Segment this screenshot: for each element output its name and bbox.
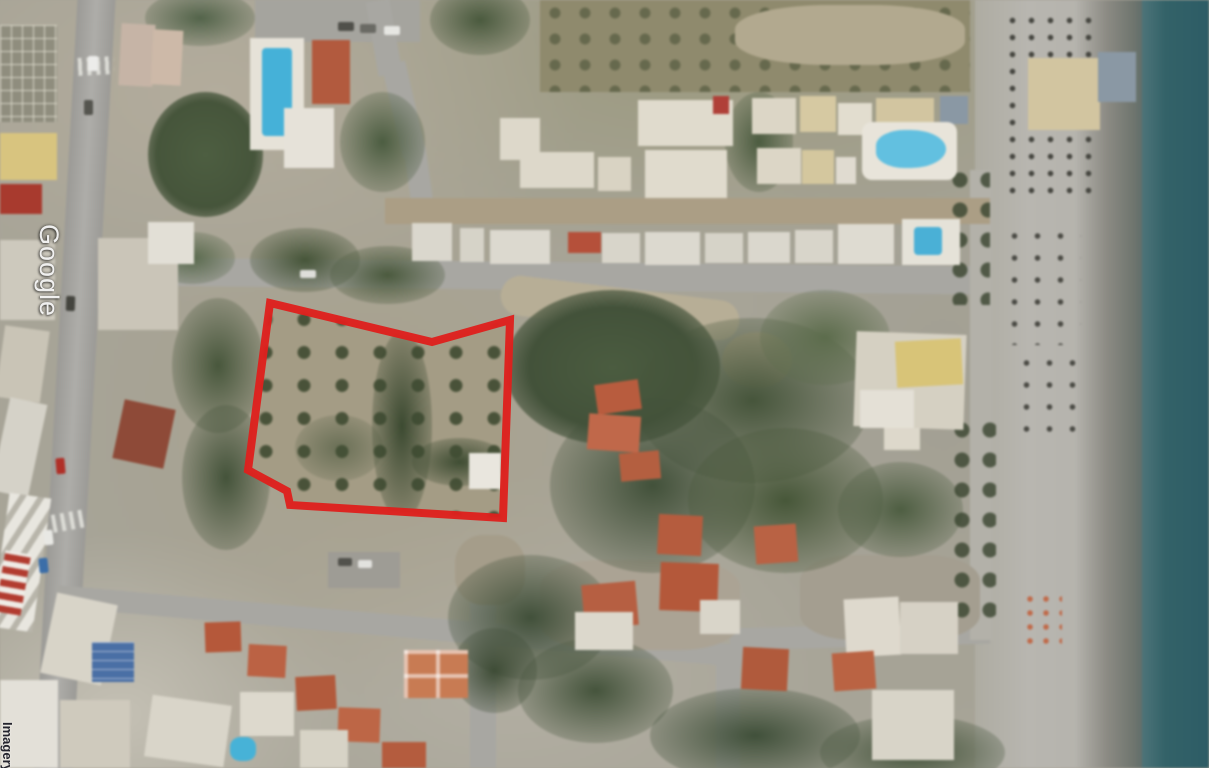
swimming-pool bbox=[230, 737, 256, 761]
building-block bbox=[645, 232, 700, 265]
building-block bbox=[1098, 52, 1136, 102]
building-block bbox=[151, 29, 184, 85]
building-block bbox=[60, 700, 130, 768]
building-block bbox=[700, 600, 740, 634]
building-block bbox=[757, 148, 801, 184]
dirt-patch bbox=[735, 5, 965, 65]
building-block bbox=[836, 157, 856, 184]
building-block bbox=[0, 133, 57, 180]
building-roof bbox=[204, 621, 241, 652]
building-block bbox=[0, 397, 47, 498]
building-roof bbox=[295, 675, 337, 711]
building-block bbox=[520, 152, 594, 188]
sea bbox=[1142, 0, 1209, 768]
swimming-pool bbox=[876, 130, 946, 168]
tree-clump bbox=[295, 415, 383, 481]
building-roof bbox=[619, 450, 661, 481]
car bbox=[384, 26, 400, 35]
building-block bbox=[940, 96, 968, 124]
tree-canopy bbox=[430, 0, 530, 55]
building-block bbox=[490, 230, 550, 264]
building-awning bbox=[0, 184, 42, 214]
tree-mass bbox=[518, 638, 673, 743]
satellite-map: Google Imagery bbox=[0, 0, 1209, 768]
building-block bbox=[884, 428, 920, 450]
beach-umbrellas bbox=[1003, 225, 1081, 345]
car bbox=[300, 270, 316, 278]
car bbox=[338, 558, 352, 566]
building-roof bbox=[112, 399, 175, 469]
building-roof bbox=[382, 742, 426, 768]
car bbox=[55, 458, 65, 475]
beach-bushes bbox=[948, 415, 996, 627]
building-block bbox=[312, 40, 350, 104]
car bbox=[358, 560, 372, 568]
building-block bbox=[838, 224, 894, 264]
building-roof bbox=[568, 232, 601, 253]
building-canopy bbox=[802, 150, 834, 184]
building-block bbox=[860, 390, 914, 428]
car bbox=[43, 530, 54, 546]
building-block bbox=[575, 612, 633, 650]
building-canopy bbox=[800, 96, 836, 132]
car bbox=[84, 100, 93, 115]
building-block bbox=[144, 695, 232, 768]
dirt-strip bbox=[385, 198, 990, 224]
google-watermark: Google bbox=[33, 224, 64, 317]
building-roof bbox=[713, 96, 729, 114]
building-block bbox=[460, 228, 484, 262]
building-block bbox=[284, 108, 334, 168]
tree-canopy bbox=[340, 92, 425, 192]
building-block bbox=[748, 232, 790, 263]
courtyard bbox=[404, 650, 468, 698]
building-roof bbox=[754, 524, 799, 565]
building-block bbox=[412, 223, 452, 261]
building-roof bbox=[741, 647, 789, 691]
olive-grove-plot bbox=[247, 303, 510, 518]
building-block bbox=[705, 233, 743, 263]
car bbox=[338, 22, 354, 31]
building-block bbox=[795, 230, 833, 263]
tree-mass bbox=[838, 462, 963, 557]
building-block bbox=[872, 690, 954, 760]
car bbox=[38, 558, 49, 574]
solar-panels bbox=[92, 642, 134, 682]
building-roof bbox=[657, 514, 703, 556]
building-roof bbox=[895, 338, 963, 387]
building-block bbox=[148, 222, 194, 264]
building-block bbox=[844, 597, 902, 658]
swimming-pool bbox=[914, 227, 942, 255]
building-roof bbox=[832, 651, 877, 692]
beach-umbrellas bbox=[1015, 352, 1085, 437]
car bbox=[360, 24, 376, 33]
terrain-layer bbox=[0, 0, 1209, 768]
shed bbox=[469, 453, 501, 489]
car bbox=[66, 296, 76, 311]
car bbox=[88, 56, 98, 71]
tree-canopy bbox=[148, 92, 263, 217]
imagery-attribution: Imagery bbox=[0, 722, 15, 768]
building-block bbox=[300, 730, 348, 768]
building-block bbox=[0, 25, 57, 122]
building-roof bbox=[247, 644, 287, 678]
building-block bbox=[0, 325, 50, 403]
building-block bbox=[752, 98, 796, 134]
building-roof bbox=[587, 413, 641, 453]
building-block bbox=[598, 157, 631, 191]
tree-clump bbox=[372, 331, 432, 521]
building-block bbox=[1028, 58, 1100, 130]
building-roof bbox=[594, 379, 642, 415]
building-block bbox=[900, 602, 958, 654]
building-block bbox=[602, 233, 640, 263]
beach-umbrellas-orange bbox=[1022, 592, 1062, 650]
building-block bbox=[645, 150, 727, 198]
building-block bbox=[240, 692, 294, 736]
